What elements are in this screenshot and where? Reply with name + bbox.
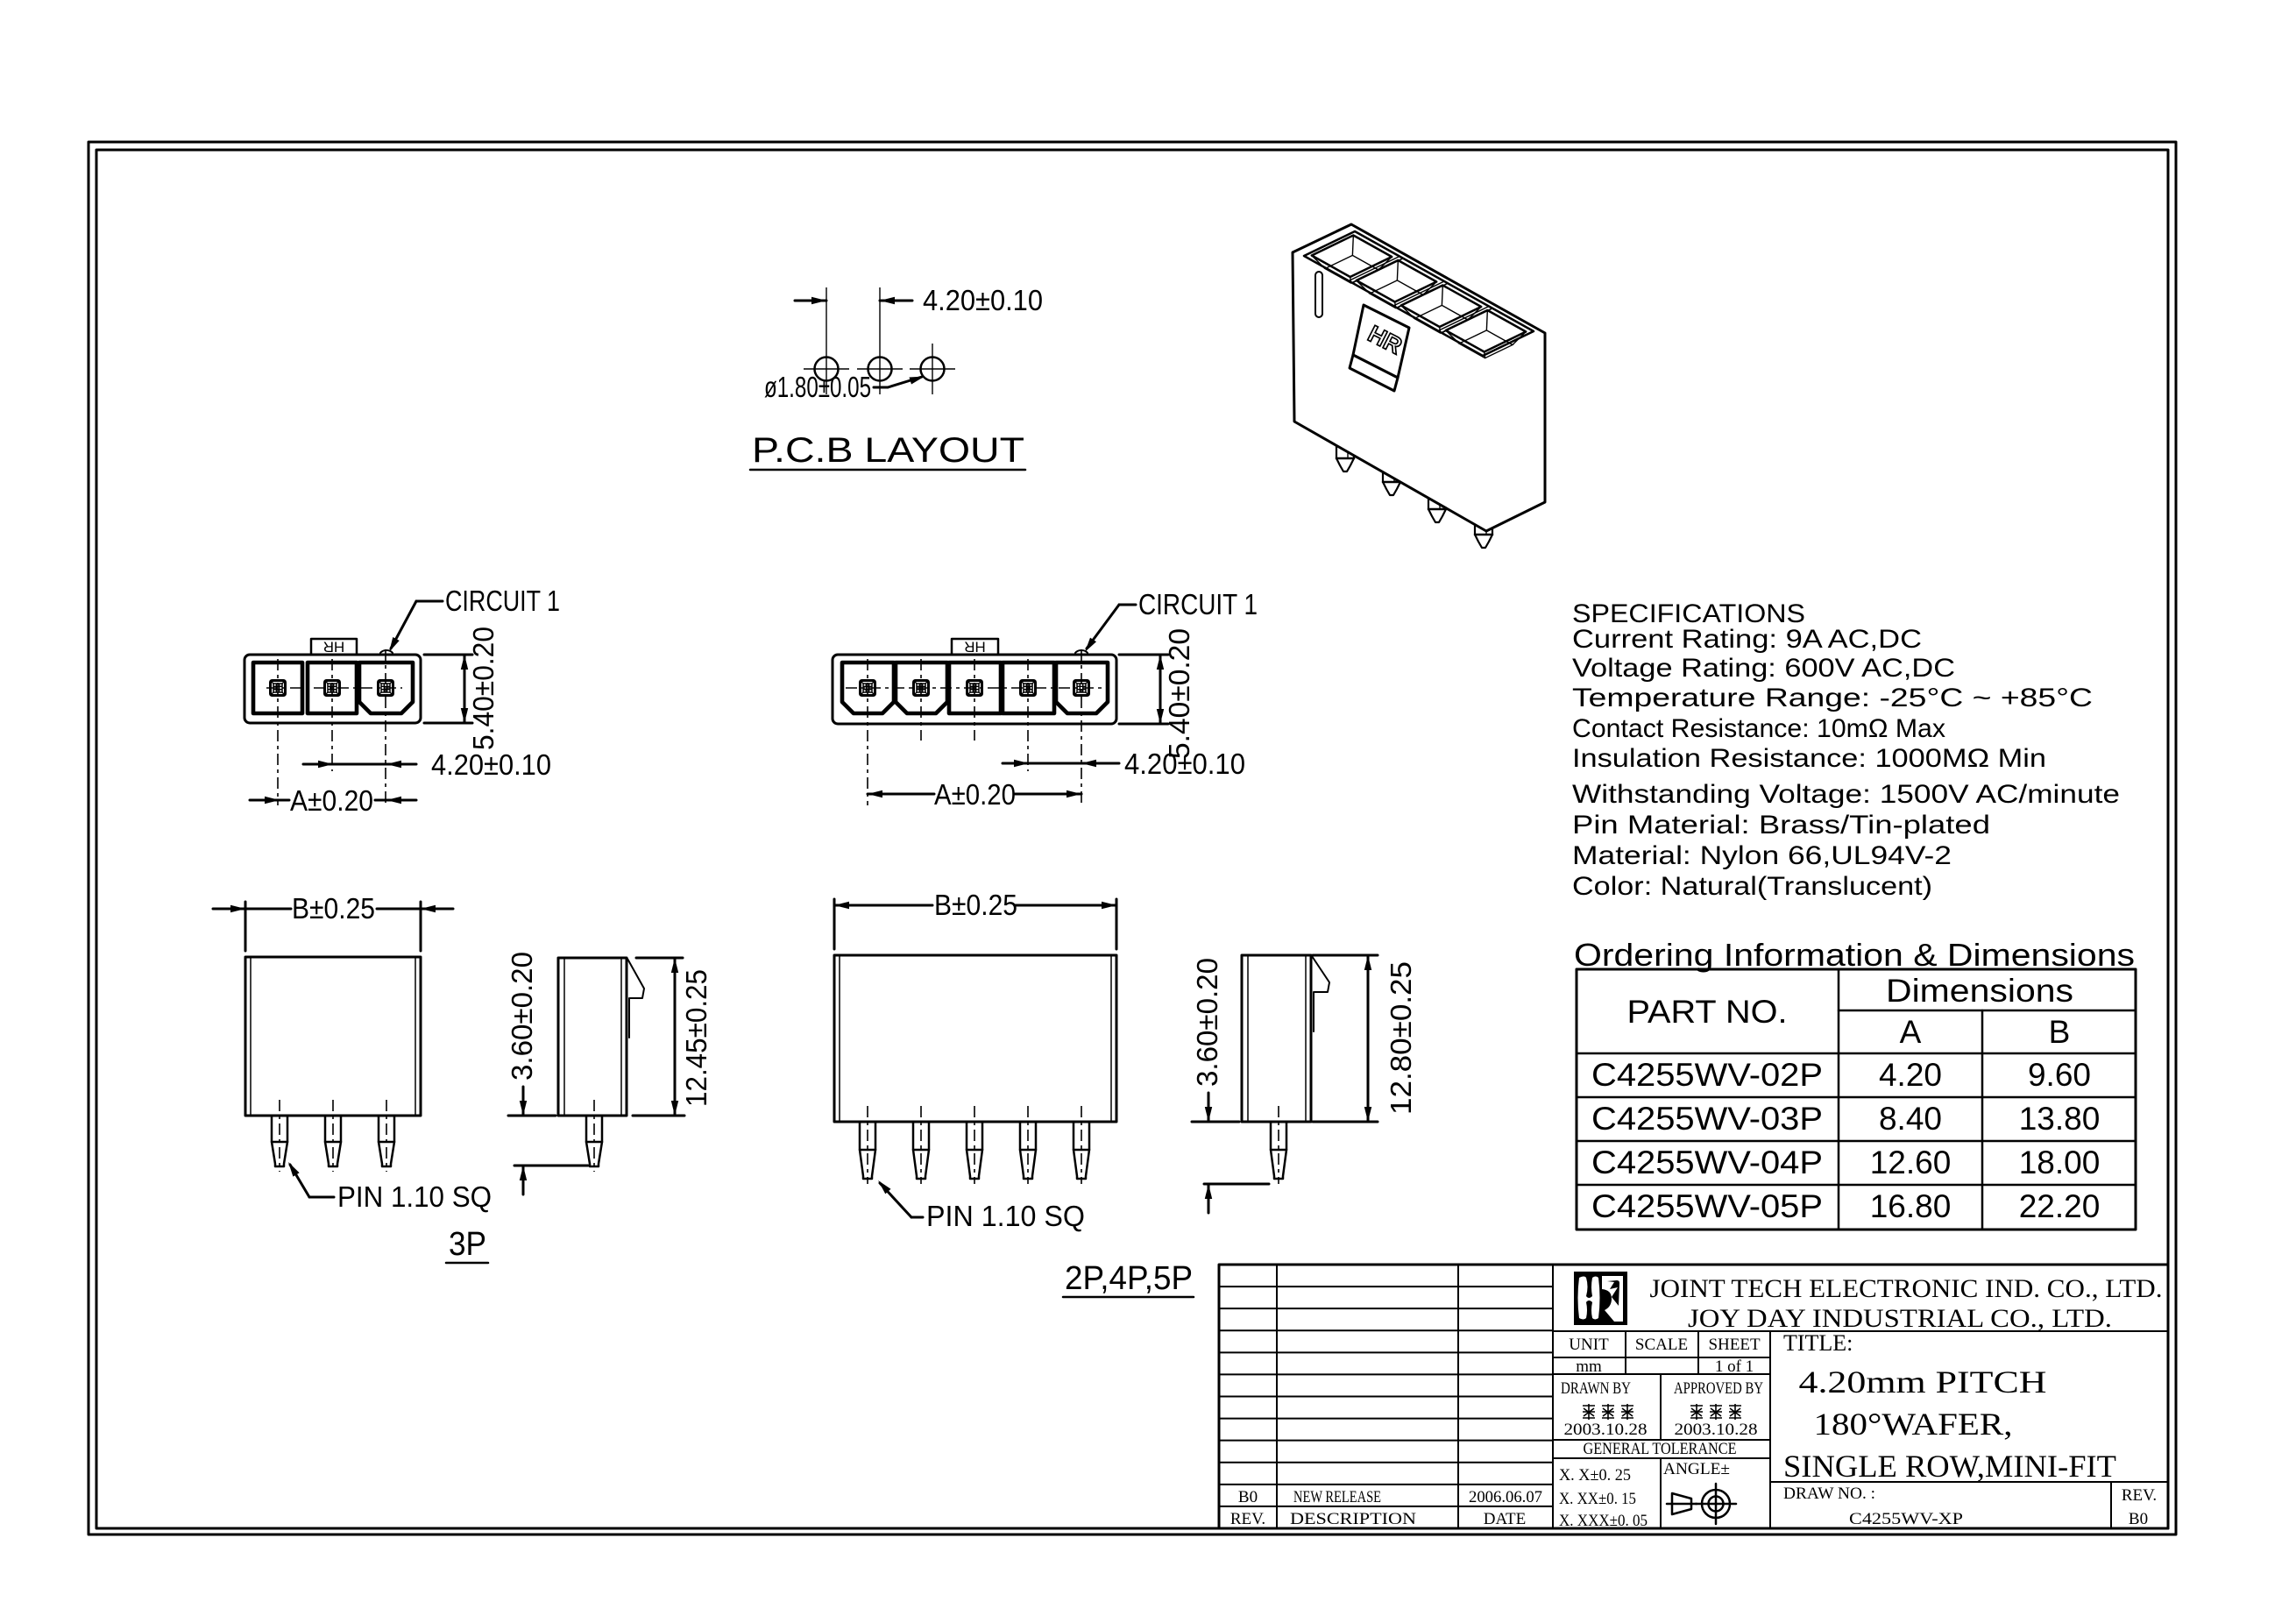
svg-text:TITLE:: TITLE:: [1783, 1330, 1853, 1356]
svg-text:UNIT: UNIT: [1569, 1336, 1609, 1354]
svg-text:9.60: 9.60: [2028, 1057, 2091, 1093]
svg-text:2003.10.28: 2003.10.28: [1675, 1421, 1758, 1439]
svg-text:3.60±0.20: 3.60±0.20: [1191, 958, 1223, 1087]
svg-text:Ordering Information & Dime: Ordering Information & Dimensions: [1574, 937, 2135, 973]
svg-text:4.20: 4.20: [1879, 1057, 1942, 1093]
svg-text:SINGLE ROW,MINI-FIT: SINGLE ROW,MINI-FIT: [1783, 1449, 2116, 1484]
svg-text:C4255WV-05P: C4255WV-05P: [1591, 1188, 1823, 1224]
svg-text:Temperature Range: -25°C ~: Temperature Range: -25°C ~ +85°C: [1572, 684, 2093, 712]
svg-text:3.60±0.20: 3.60±0.20: [506, 952, 538, 1081]
svg-text:CIRCUIT 1: CIRCUIT 1: [445, 585, 560, 617]
svg-text:REV.: REV.: [1230, 1510, 1265, 1528]
svg-text:B±0.25: B±0.25: [292, 892, 375, 925]
svg-text:C4255WV-XP: C4255WV-XP: [1849, 1510, 1963, 1528]
svg-text:APPROVED BY: APPROVED BY: [1674, 1379, 1763, 1398]
svg-text:12.45±0.25: 12.45±0.25: [680, 969, 712, 1107]
svg-text:18.00: 18.00: [2019, 1145, 2101, 1180]
svg-text:5.40±0.20: 5.40±0.20: [1163, 628, 1195, 759]
svg-text:16.80: 16.80: [1870, 1188, 1952, 1224]
svg-text:A±0.20: A±0.20: [934, 778, 1016, 811]
svg-text:2006.06.07: 2006.06.07: [1469, 1488, 1542, 1506]
svg-text:22.20: 22.20: [2019, 1188, 2101, 1224]
svg-text:DRAWN BY: DRAWN BY: [1561, 1379, 1631, 1398]
svg-text:8.40: 8.40: [1879, 1101, 1942, 1137]
svg-text:SHEET: SHEET: [1708, 1336, 1761, 1354]
svg-text:12.80±0.25: 12.80±0.25: [1385, 961, 1417, 1115]
svg-text:4.20mm PITCH: 4.20mm PITCH: [1799, 1364, 2047, 1400]
svg-text:Color: Natural(Translucent): Color: Natural(Translucent): [1572, 872, 1932, 901]
svg-text:JOY DAY INDUSTRIAL CO., LTD.: JOY DAY INDUSTRIAL CO., LTD.: [1688, 1304, 2112, 1333]
svg-text:5.40±0.20: 5.40±0.20: [467, 627, 500, 750]
svg-text:4.20±0.10: 4.20±0.10: [431, 748, 551, 781]
svg-text:12.60: 12.60: [1870, 1145, 1952, 1180]
svg-text:180°WAFER,: 180°WAFER,: [1814, 1407, 2013, 1442]
svg-text:SCALE: SCALE: [1635, 1336, 1688, 1354]
svg-text:DRAW NO. :: DRAW NO. :: [1783, 1485, 1875, 1503]
svg-text:X. X±0. 25: X. X±0. 25: [1559, 1466, 1631, 1485]
svg-text:C4255WV-04P: C4255WV-04P: [1591, 1145, 1823, 1180]
svg-text:C4255WV-03P: C4255WV-03P: [1591, 1101, 1823, 1137]
svg-text:1 of 1: 1 of 1: [1715, 1357, 1754, 1376]
svg-text:PART NO.: PART NO.: [1627, 994, 1788, 1030]
svg-text:B0: B0: [1238, 1488, 1258, 1506]
svg-text:mm: mm: [1576, 1357, 1602, 1376]
svg-text:Contact Resistance: 10mΩ Ma: Contact Resistance: 10mΩ Max: [1572, 714, 1945, 743]
svg-text:PIN 1.10 SQ: PIN 1.10 SQ: [337, 1180, 492, 1213]
svg-text:4.20±0.10: 4.20±0.10: [1124, 748, 1245, 780]
svg-text:B: B: [2049, 1014, 2071, 1050]
svg-text:3P: 3P: [449, 1226, 486, 1263]
svg-text:CIRCUIT 1: CIRCUIT 1: [1138, 588, 1258, 620]
svg-text:A: A: [1900, 1014, 1922, 1050]
svg-text:P.C.B LAYOUT: P.C.B LAYOUT: [752, 431, 1024, 470]
svg-text:C4255WV-02P: C4255WV-02P: [1591, 1057, 1823, 1093]
svg-text:13.80: 13.80: [2019, 1101, 2101, 1137]
svg-text:B0: B0: [2129, 1510, 2148, 1528]
svg-text:ø1.80±0.05: ø1.80±0.05: [764, 371, 871, 403]
svg-text:GENERAL TOLERANCE: GENERAL TOLERANCE: [1584, 1440, 1737, 1458]
svg-text:HR: HR: [964, 639, 986, 656]
svg-text:Current Rating: 9A AC,DC: Current Rating: 9A AC,DC: [1572, 625, 1922, 654]
svg-text:HR: HR: [323, 639, 345, 656]
svg-text:JOINT TECH ELECTRONIC IND. CO.: JOINT TECH ELECTRONIC IND. CO., LTD.: [1650, 1274, 2163, 1303]
svg-text:B±0.25: B±0.25: [934, 889, 1017, 921]
svg-text:4.20±0.10: 4.20±0.10: [923, 284, 1043, 316]
svg-text:Pin Material: Brass/Tin-plat: Pin Material: Brass/Tin-plated: [1572, 811, 1990, 840]
svg-text:A±0.20: A±0.20: [290, 784, 373, 817]
svg-text:Dimensions: Dimensions: [1886, 973, 2073, 1009]
svg-text:Insulation Resistance: 1000M: Insulation Resistance: 1000MΩ Min: [1572, 744, 2046, 773]
svg-text:Voltage Rating: 600V AC,DC: Voltage Rating: 600V AC,DC: [1572, 654, 1955, 683]
svg-text:Material: Nylon 66,UL94V-2: Material: Nylon 66,UL94V-2: [1572, 841, 1952, 870]
svg-text:PIN 1.10 SQ: PIN 1.10 SQ: [926, 1200, 1085, 1232]
svg-text:NEW RELEASE: NEW RELEASE: [1293, 1488, 1381, 1506]
svg-text:DATE: DATE: [1484, 1510, 1527, 1528]
svg-text:Withstanding Voltage: 1500V: Withstanding Voltage: 1500V AC/minute: [1572, 780, 2120, 809]
svg-text:2003.10.28: 2003.10.28: [1564, 1421, 1648, 1439]
svg-text:X. XX±0. 15: X. XX±0. 15: [1559, 1490, 1636, 1508]
svg-text:REV.: REV.: [2122, 1486, 2157, 1505]
svg-text:2P,4P,5P: 2P,4P,5P: [1065, 1260, 1193, 1297]
svg-text:DESCRIPTION: DESCRIPTION: [1290, 1510, 1416, 1528]
svg-text:X. XXX±0. 05: X. XXX±0. 05: [1559, 1512, 1648, 1530]
svg-text:ANGLE±: ANGLE±: [1663, 1460, 1730, 1478]
